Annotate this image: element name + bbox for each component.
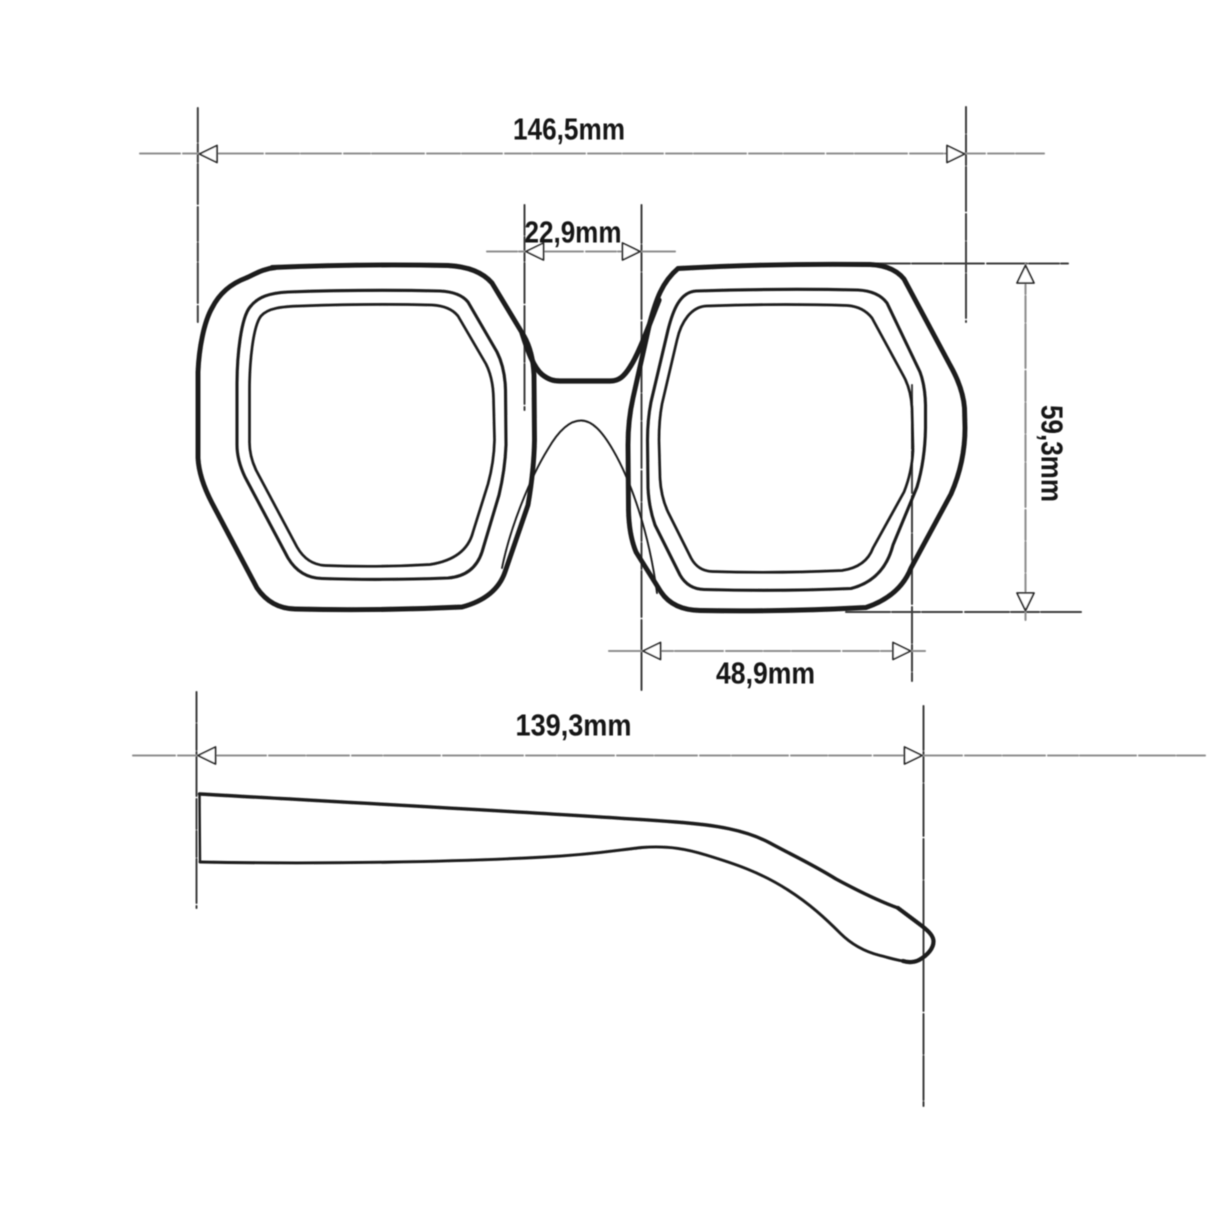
svg-text:139,3mm: 139,3mm — [516, 708, 632, 743]
svg-text:146,5mm: 146,5mm — [513, 112, 625, 147]
svg-text:22,9mm: 22,9mm — [525, 215, 622, 250]
svg-text:59,3mm: 59,3mm — [1035, 405, 1070, 502]
svg-text:48,9mm: 48,9mm — [716, 656, 815, 691]
